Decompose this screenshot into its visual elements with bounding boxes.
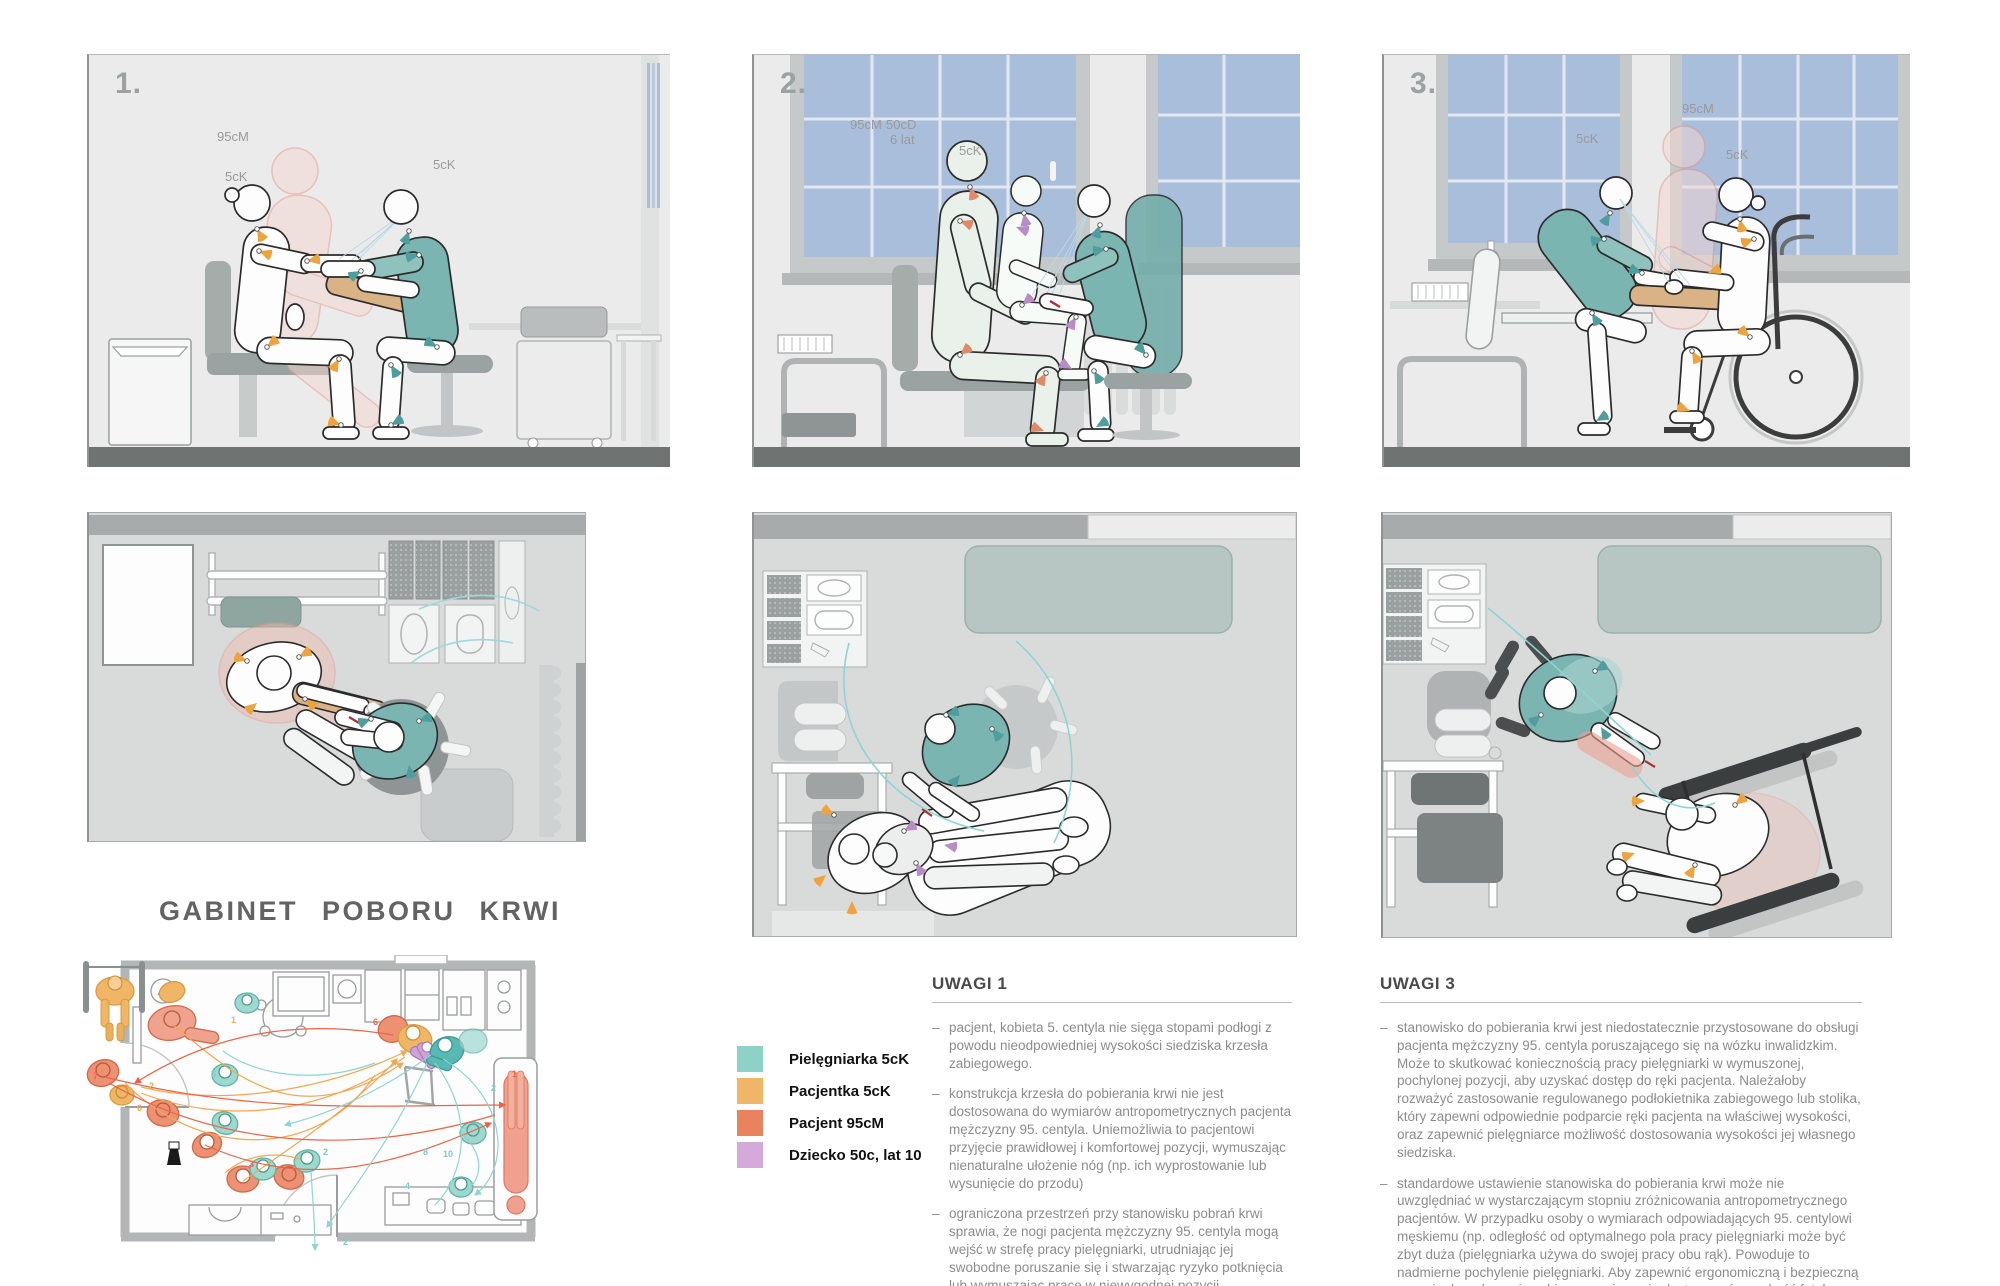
percentile-label: 6 lat	[890, 132, 915, 147]
bench	[778, 681, 846, 761]
top-scene-3	[1383, 513, 1891, 937]
side-scene-3	[1384, 55, 1910, 467]
top-view-panel-2	[752, 512, 1297, 937]
percentile-label: 5cK	[225, 169, 247, 184]
cabinet	[1383, 564, 1486, 664]
legend-item: Pacjent 95cM	[737, 1110, 922, 1136]
wall-bar	[89, 515, 585, 535]
note-text: pacjent, kobieta 5. centyla nie sięga st…	[949, 1019, 1292, 1072]
side-panel-3: 3. 5cK 95cM 5cK	[1382, 54, 1910, 467]
wall-bar-light	[1088, 515, 1296, 539]
door-frame	[641, 55, 660, 447]
desk-teal	[1598, 546, 1881, 633]
panel-number: 2.	[780, 67, 807, 101]
legend-swatch-nurse	[737, 1046, 763, 1072]
bullet-dash: –	[932, 1019, 949, 1072]
note-bullet: – konstrukcja krzesła do pobierania krwi…	[932, 1085, 1292, 1192]
legend: Pielęgniarka 5cK Pacjentka 5cK Pacjent 9…	[737, 1046, 922, 1174]
legend-swatch-male-patient	[737, 1110, 763, 1136]
cabinet	[763, 571, 867, 667]
wall-bar	[1383, 515, 1733, 539]
legend-swatch-child	[737, 1142, 763, 1168]
side-panel-2: 2. 95cM 50cD 6 lat 5cK	[752, 54, 1300, 467]
route-number: 10	[443, 1149, 453, 1159]
counter	[1390, 301, 1540, 309]
legend-item: Pacjentka 5cK	[737, 1078, 922, 1104]
legend-label: Dziecko 50c, lat 10	[789, 1147, 922, 1164]
route-number: 7	[93, 1071, 98, 1081]
notes-heading: UWAGI 3	[1380, 974, 1862, 994]
legend-swatch-female-patient	[737, 1078, 763, 1104]
exam-bed	[494, 1058, 537, 1220]
note-text: stanowisko do pobierania krwi jest niedo…	[1397, 1019, 1862, 1162]
legend-item: Dziecko 50c, lat 10	[737, 1142, 922, 1168]
panel-number: 1.	[115, 67, 142, 101]
notes-heading: UWAGI 1	[932, 974, 1292, 994]
percentile-label: 5cK	[433, 157, 455, 172]
note-text: konstrukcja krzesła do pobierania krwi n…	[949, 1085, 1292, 1192]
side-scene-1	[89, 55, 670, 467]
bullet-dash: –	[1380, 1019, 1397, 1162]
notes-column-1: UWAGI 1 – pacjent, kobieta 5. centyla ni…	[932, 974, 1292, 1286]
mat	[772, 911, 934, 936]
percentile-label: 95cM	[850, 117, 882, 132]
whiteboard	[103, 545, 193, 665]
route-number: 6	[137, 1103, 142, 1113]
top-view-panel-1	[87, 512, 586, 842]
percentile-label: 95cM	[217, 129, 249, 144]
floor-plan-drawing: 7 6 2 1 5 3 2 6 8 10 4 2 1 2	[75, 955, 545, 1255]
vent	[395, 955, 447, 964]
route-number: 2	[343, 1237, 348, 1247]
poster-title: GABINET POBORU KRWI	[150, 896, 570, 927]
route-number: 6	[373, 1017, 378, 1027]
legend-label: Pacjentka 5cK	[789, 1083, 891, 1100]
floor-plan: 7 6 2 1 5 3 2 6 8 10 4 2 1 2	[75, 955, 545, 1255]
note-bullet: – pacjent, kobieta 5. centyla nie sięga …	[932, 1019, 1292, 1072]
route-number: 3	[249, 1159, 254, 1169]
waste-bin	[109, 339, 191, 445]
divider	[1380, 1002, 1862, 1003]
note-bullet: – stanowisko do pobierania krwi jest nie…	[1380, 1019, 1862, 1162]
route-number: 2	[323, 1147, 328, 1157]
notes-column-3: UWAGI 3 – stanowisko do pobierania krwi …	[1380, 974, 1862, 1286]
floor	[1384, 447, 1910, 467]
side-panel-1: 1. 95cM 5cK 5cK	[87, 54, 670, 467]
percentile-label: 5cK	[1576, 131, 1598, 146]
bullet-dash: –	[932, 1085, 949, 1192]
top-scene-2	[754, 513, 1296, 936]
percentile-label: 95cM	[1682, 101, 1714, 116]
route-number: 2	[491, 1083, 496, 1093]
legend-label: Pacjent 95cM	[789, 1115, 884, 1132]
top-scene-1	[89, 513, 585, 841]
wall-return	[576, 663, 585, 841]
legend-label: Pielęgniarka 5cK	[789, 1051, 909, 1068]
route-number: 1	[231, 1015, 236, 1025]
wall-bar	[754, 515, 1088, 539]
route-number: 2	[149, 1081, 154, 1091]
side-scene-2	[754, 55, 1300, 467]
divider	[932, 1002, 1292, 1003]
top-view-panel-3	[1381, 512, 1892, 938]
bullet-dash: –	[1380, 1175, 1397, 1286]
wall-bar-light	[1733, 515, 1891, 539]
floor	[754, 447, 1300, 467]
percentile-label: 50cD	[886, 117, 916, 132]
route-number: 1	[512, 1069, 517, 1079]
note-text: standardowe ustawienie stanowiska do pob…	[1397, 1175, 1862, 1286]
route-number: 8	[423, 1147, 428, 1157]
route-number: 4	[405, 1181, 410, 1191]
floor	[89, 447, 670, 467]
percentile-label: 5cK	[959, 143, 981, 158]
chair-backrest	[221, 597, 301, 627]
percentile-label: 5cK	[1726, 147, 1748, 162]
note-bullet: – standardowe ustawienie stanowiska do p…	[1380, 1175, 1862, 1286]
desk-teal	[965, 546, 1232, 633]
note-bullet: – ograniczona przestrzeń przy stanowisku…	[932, 1205, 1292, 1286]
note-text: ograniczona przestrzeń przy stanowisku p…	[949, 1205, 1292, 1286]
poster-page: 1. 95cM 5cK 5cK	[0, 0, 2000, 1286]
route-number: 5	[211, 1069, 216, 1079]
bullet-dash: –	[932, 1205, 949, 1286]
legend-item: Pielęgniarka 5cK	[737, 1046, 922, 1072]
panel-number: 3.	[1410, 67, 1437, 101]
